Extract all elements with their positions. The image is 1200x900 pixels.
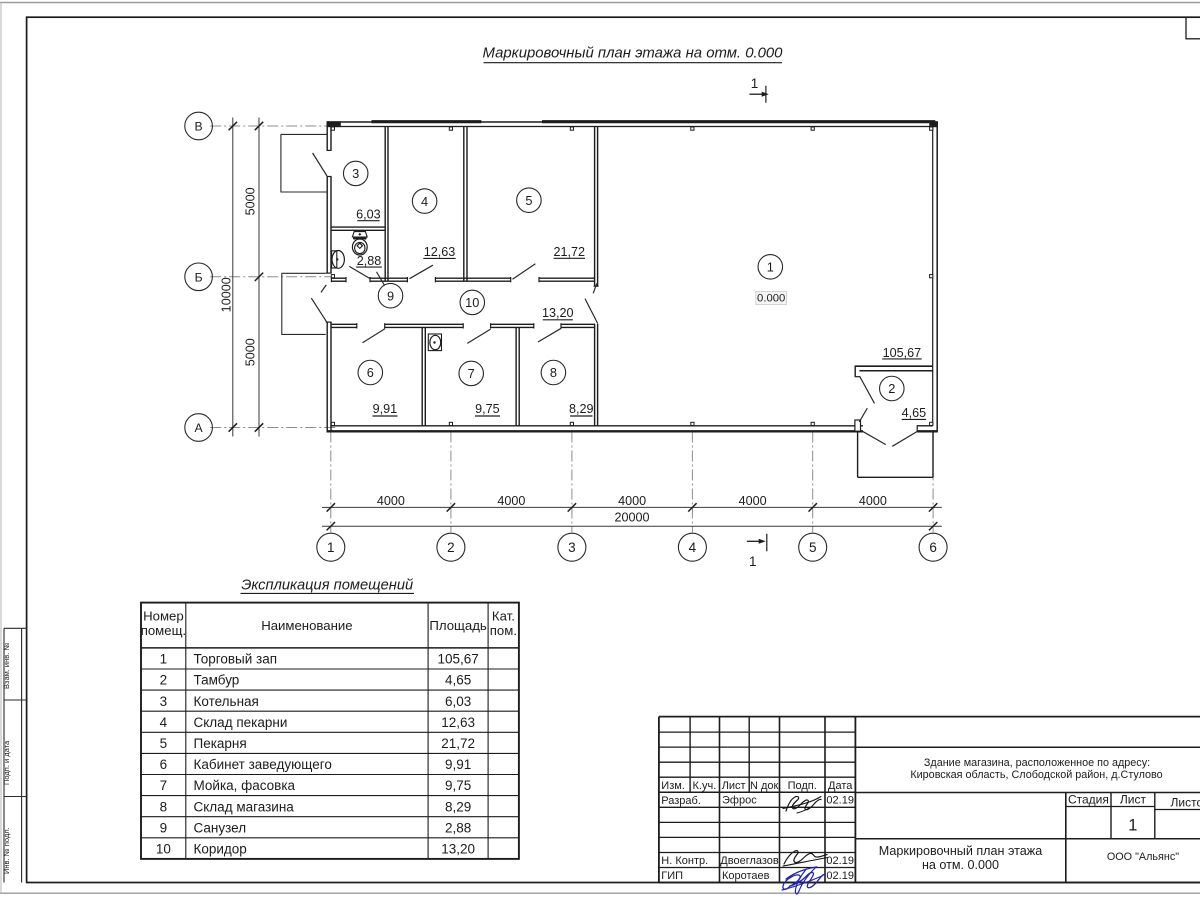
svg-text:4000: 4000 [859, 494, 887, 508]
svg-text:Инв. № подл.: Инв. № подл. [2, 827, 11, 874]
svg-text:1: 1 [751, 76, 759, 91]
svg-text:8: 8 [160, 799, 168, 814]
svg-text:10000: 10000 [219, 277, 233, 312]
svg-text:4000: 4000 [377, 494, 405, 508]
svg-text:Листов: Листов [1171, 795, 1200, 809]
svg-text:21,72: 21,72 [441, 736, 475, 751]
svg-text:10: 10 [465, 295, 479, 310]
svg-text:3: 3 [352, 166, 359, 181]
svg-text:9: 9 [387, 288, 394, 303]
svg-text:ГИП: ГИП [661, 870, 683, 882]
svg-text:Маркировочный план этажа: Маркировочный план этажа [879, 844, 1042, 858]
svg-text:пом.: пом. [490, 623, 517, 638]
svg-text:13,20: 13,20 [441, 842, 475, 857]
svg-text:Лист: Лист [722, 780, 746, 792]
svg-text:Пекарня: Пекарня [194, 736, 247, 751]
svg-text:4: 4 [421, 194, 428, 209]
svg-text:Кабинет заведующего: Кабинет заведующего [194, 757, 332, 772]
svg-text:4: 4 [689, 540, 697, 555]
svg-text:105,67: 105,67 [437, 652, 478, 667]
svg-text:3: 3 [160, 694, 168, 709]
svg-text:К.уч.: К.уч. [693, 780, 717, 792]
svg-text:02.19: 02.19 [826, 870, 854, 882]
svg-text:2: 2 [888, 381, 895, 396]
svg-text:5: 5 [525, 193, 532, 208]
svg-text:Подп.: Подп. [788, 780, 817, 792]
svg-text:В: В [195, 120, 203, 134]
svg-text:0.000: 0.000 [757, 293, 785, 305]
svg-text:10: 10 [156, 842, 171, 857]
svg-text:Стадия: Стадия [1068, 792, 1109, 806]
svg-text:4000: 4000 [618, 494, 646, 508]
svg-text:4,65: 4,65 [445, 673, 471, 688]
svg-text:8: 8 [550, 365, 557, 380]
svg-text:6: 6 [160, 757, 168, 772]
svg-text:6,03: 6,03 [356, 207, 381, 221]
svg-text:Склад пекарни: Склад пекарни [194, 715, 288, 730]
svg-text:13,20: 13,20 [542, 306, 574, 320]
svg-text:Кат.: Кат. [492, 609, 515, 624]
svg-text:Мойка, фасовка: Мойка, фасовка [194, 778, 296, 793]
svg-text:9,91: 9,91 [445, 757, 471, 772]
svg-text:Торговый зап: Торговый зап [194, 652, 278, 667]
svg-text:Подп. и дата: Подп. и дата [2, 740, 11, 785]
svg-text:1: 1 [160, 652, 168, 667]
svg-text:Б: Б [195, 271, 203, 285]
svg-text:105,67: 105,67 [883, 346, 922, 360]
svg-text:5000: 5000 [244, 338, 258, 366]
svg-text:Котельная: Котельная [194, 694, 259, 709]
svg-text:12,63: 12,63 [424, 245, 456, 259]
svg-text:А: А [195, 421, 204, 435]
svg-text:Изм.: Изм. [661, 780, 685, 792]
svg-text:5: 5 [809, 540, 817, 555]
svg-text:2: 2 [160, 673, 168, 688]
svg-text:Лист: Лист [1120, 792, 1147, 806]
svg-text:02.19: 02.19 [826, 795, 854, 807]
svg-text:Склад магазина: Склад магазина [194, 799, 295, 814]
svg-text:20000: 20000 [614, 511, 649, 525]
svg-text:5: 5 [160, 736, 168, 751]
svg-text:9,91: 9,91 [373, 402, 398, 416]
svg-text:8,29: 8,29 [445, 799, 471, 814]
svg-text:Тамбур: Тамбур [194, 673, 240, 688]
svg-text:N док.: N док. [750, 780, 781, 792]
svg-text:Коридор: Коридор [194, 842, 247, 857]
svg-text:7: 7 [160, 778, 168, 793]
svg-text:на отм. 0.000: на отм. 0.000 [922, 858, 999, 872]
svg-text:02.19: 02.19 [826, 855, 854, 867]
svg-text:4000: 4000 [739, 494, 767, 508]
svg-text:2,88: 2,88 [445, 820, 471, 835]
svg-text:Санузел: Санузел [194, 820, 247, 835]
svg-text:Здание магазина, расположенное: Здание магазина, расположенное по адресу… [924, 757, 1150, 769]
svg-text:Маркировочный план этажа на от: Маркировочный план этажа на отм. 0.000 [483, 46, 784, 62]
svg-text:1: 1 [327, 540, 335, 555]
svg-text:4,65: 4,65 [902, 406, 927, 420]
svg-text:5000: 5000 [244, 187, 258, 215]
svg-text:9,75: 9,75 [445, 778, 471, 793]
svg-text:Взам. инв. №: Взам. инв. № [2, 643, 11, 689]
svg-text:1: 1 [767, 260, 774, 275]
svg-text:ООО "Альянс": ООО "Альянс" [1107, 851, 1179, 863]
svg-text:Двоеглазов: Двоеглазов [720, 855, 779, 867]
svg-text:2: 2 [447, 540, 455, 555]
svg-text:7: 7 [468, 366, 475, 381]
svg-text:6: 6 [929, 540, 937, 555]
svg-text:Коротаев: Коротаев [722, 870, 770, 882]
svg-text:Н. Контр.: Н. Контр. [661, 855, 708, 867]
svg-text:Площадь: Площадь [429, 618, 487, 633]
svg-text:4000: 4000 [497, 494, 525, 508]
svg-text:2,88: 2,88 [357, 254, 382, 268]
svg-text:Экспликация помещений: Экспликация помещений [241, 577, 413, 593]
svg-text:Номер: Номер [143, 609, 184, 624]
svg-text:1: 1 [1128, 817, 1137, 835]
svg-text:8,29: 8,29 [569, 402, 594, 416]
svg-text:Кировская область, Слободской: Кировская область, Слободской район, д.С… [910, 769, 1162, 781]
svg-text:1: 1 [749, 554, 757, 569]
svg-text:Наименование: Наименование [261, 618, 352, 633]
svg-text:6: 6 [367, 365, 374, 380]
svg-text:12,63: 12,63 [441, 715, 475, 730]
svg-text:Эфрос: Эфрос [722, 795, 757, 807]
svg-text:6,03: 6,03 [445, 694, 471, 709]
svg-text:Дата: Дата [828, 780, 853, 792]
svg-text:Разраб.: Разраб. [661, 795, 701, 807]
svg-text:9,75: 9,75 [475, 402, 500, 416]
svg-text:3: 3 [568, 540, 576, 555]
svg-text:4: 4 [160, 715, 168, 730]
svg-text:помещ.: помещ. [141, 623, 186, 638]
svg-text:21,72: 21,72 [554, 245, 586, 259]
svg-text:9: 9 [160, 820, 168, 835]
